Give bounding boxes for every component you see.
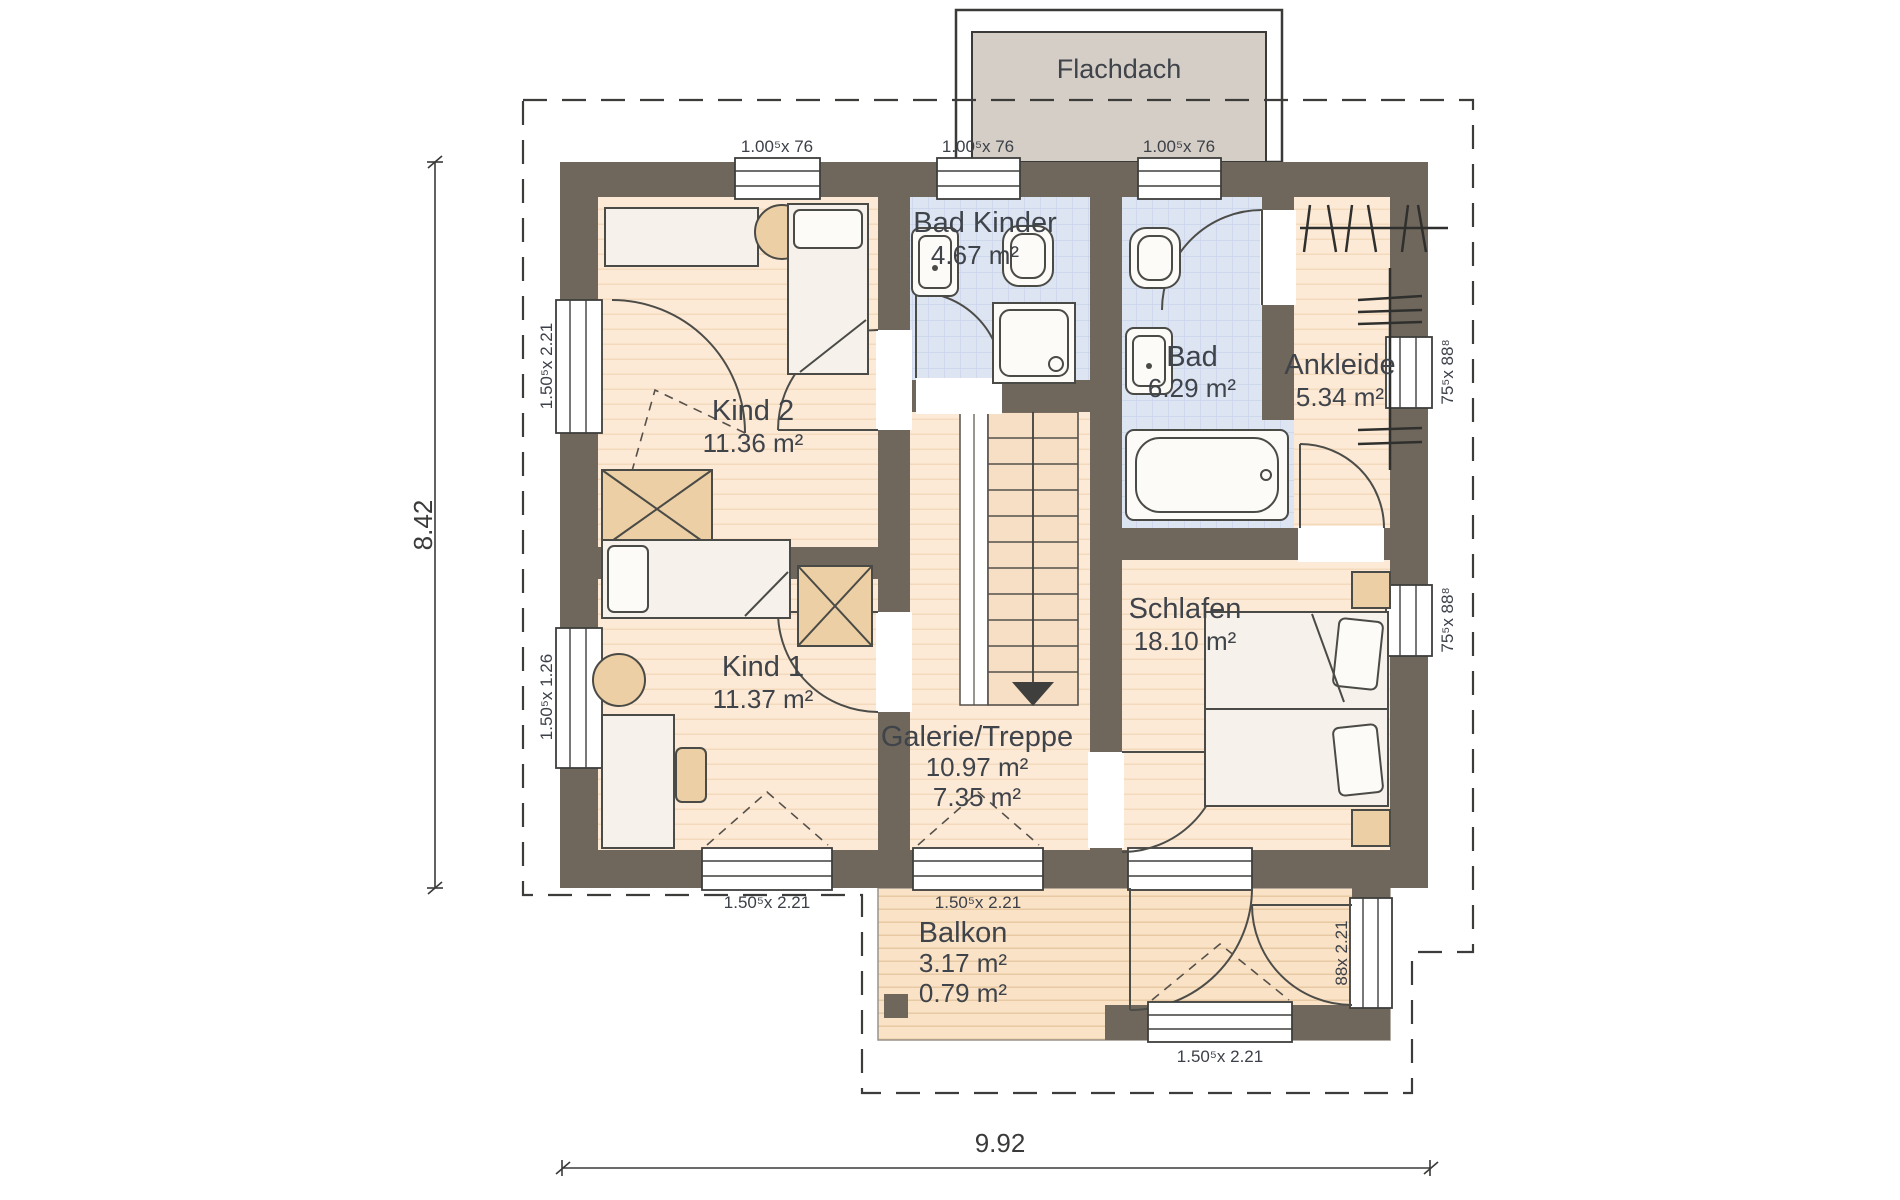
- kind1-pillow: [608, 546, 648, 612]
- label-ankleide-name: Ankleide: [1284, 349, 1395, 381]
- label-bad-name: Bad: [1166, 341, 1218, 373]
- bad-toilet: [1130, 228, 1180, 288]
- label-kind1-name: Kind 1: [722, 651, 804, 683]
- window-label-top-right: 1.00⁵x 76: [1143, 137, 1215, 156]
- label-schlafen-area: 18.10 m²: [1134, 626, 1237, 656]
- label-kind1-area: 11.37 m²: [713, 684, 814, 714]
- schlafen-pillow-2: [1333, 724, 1384, 796]
- kind2-wardrobe: [602, 470, 712, 548]
- kind2-desk: [605, 208, 758, 266]
- window-label-right-upper: 75⁵x 88⁸: [1438, 339, 1457, 404]
- schlafen-nightstand-2: [1352, 810, 1390, 846]
- floor-plan-page: 8.42 9.92: [0, 0, 1900, 1200]
- label-kind2-name: Kind 2: [712, 395, 794, 427]
- window-label-top-center: 1.00⁵x 76: [942, 137, 1014, 156]
- dim-height-label: 8.42: [408, 500, 438, 551]
- label-bad-area: 6.29 m²: [1148, 373, 1236, 403]
- label-schlafen-name: Schlafen: [1129, 593, 1242, 625]
- kind1-desk: [602, 715, 674, 848]
- label-ankleide-area: 5.34 m²: [1296, 382, 1384, 412]
- label-badkinder-area: 4.67 m²: [931, 240, 1019, 270]
- balcony-pillar: [884, 994, 908, 1018]
- wall-left: [560, 162, 598, 888]
- staircase: [960, 412, 1078, 706]
- window-top-3: [1138, 158, 1221, 199]
- window-label-right-lower: 75⁵x 88⁸: [1438, 587, 1457, 652]
- badkinder-shower: [993, 303, 1075, 383]
- window-label-left-lower: 1.50⁵x 1.26: [537, 654, 556, 740]
- kind2-pillow: [794, 210, 862, 248]
- kind1-desk-chair: [676, 748, 706, 802]
- window-label-balcony-bottom: 1.50⁵x 2.21: [1177, 1047, 1263, 1066]
- schlafen-pillow-1: [1333, 618, 1384, 690]
- label-balkon-area: 3.17 m²: [919, 948, 1007, 978]
- label-balkon-area2: 0.79 m²: [919, 978, 1007, 1008]
- label-badkinder-name: Bad Kinder: [913, 207, 1057, 239]
- window-left-lower: [556, 628, 602, 768]
- window-top-2: [937, 158, 1020, 199]
- window-label-bottom-center: 1.50⁵x 2.21: [935, 893, 1021, 912]
- window-right-lower: [1386, 585, 1432, 656]
- kind1-wardrobe: [798, 566, 872, 646]
- floor-plan-svg: 8.42 9.92: [0, 0, 1900, 1200]
- bathtub: [1126, 430, 1288, 520]
- window-label-balcony-right: 88x 2.21: [1332, 920, 1351, 985]
- window-label-left-upper: 1.50⁵x 2.21: [537, 323, 556, 409]
- schlafen-nightstand-1: [1352, 572, 1390, 608]
- window-label-bottom-left: 1.50⁵x 2.21: [724, 893, 810, 912]
- label-galerie-area: 10.97 m²: [926, 752, 1029, 782]
- label-galerie-name: Galerie/Treppe: [881, 721, 1073, 753]
- window-label-top-left: 1.00⁵x 76: [741, 137, 813, 156]
- wall-right: [1390, 162, 1428, 888]
- label-galerie-area2: 7.35 m²: [933, 782, 1021, 812]
- label-balkon-name: Balkon: [919, 917, 1008, 949]
- label-kind2-area: 11.36 m²: [703, 428, 804, 458]
- kind1-chair: [593, 654, 645, 706]
- window-top-1: [735, 158, 820, 199]
- label-roof: Flachdach: [1057, 54, 1182, 84]
- dim-width-label: 9.92: [975, 1128, 1026, 1158]
